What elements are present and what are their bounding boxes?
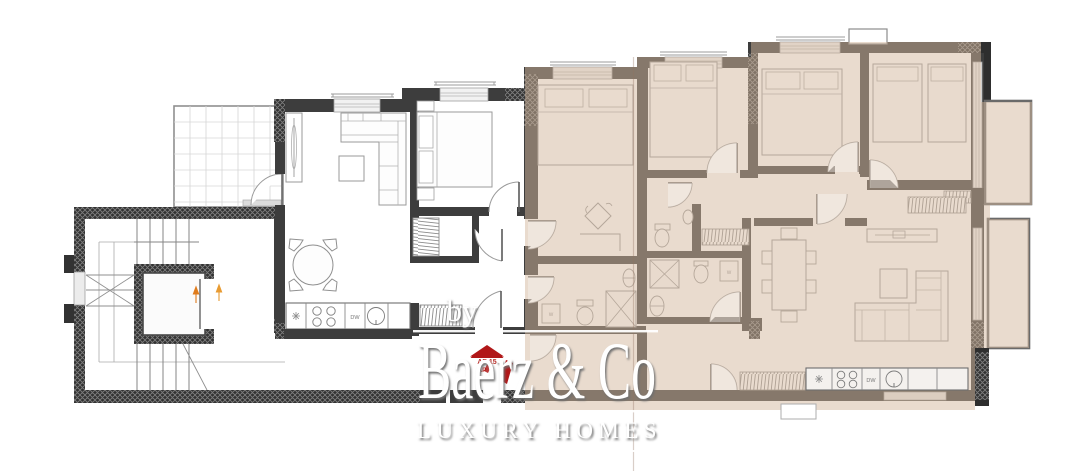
svg-text:Baerz & Co: Baerz & Co bbox=[418, 325, 656, 416]
svg-text:by: by bbox=[447, 293, 479, 328]
svg-text:LUXURY HOMES: LUXURY HOMES bbox=[417, 418, 662, 443]
svg-text:DW: DW bbox=[866, 378, 876, 384]
svg-text:DW: DW bbox=[350, 315, 360, 321]
